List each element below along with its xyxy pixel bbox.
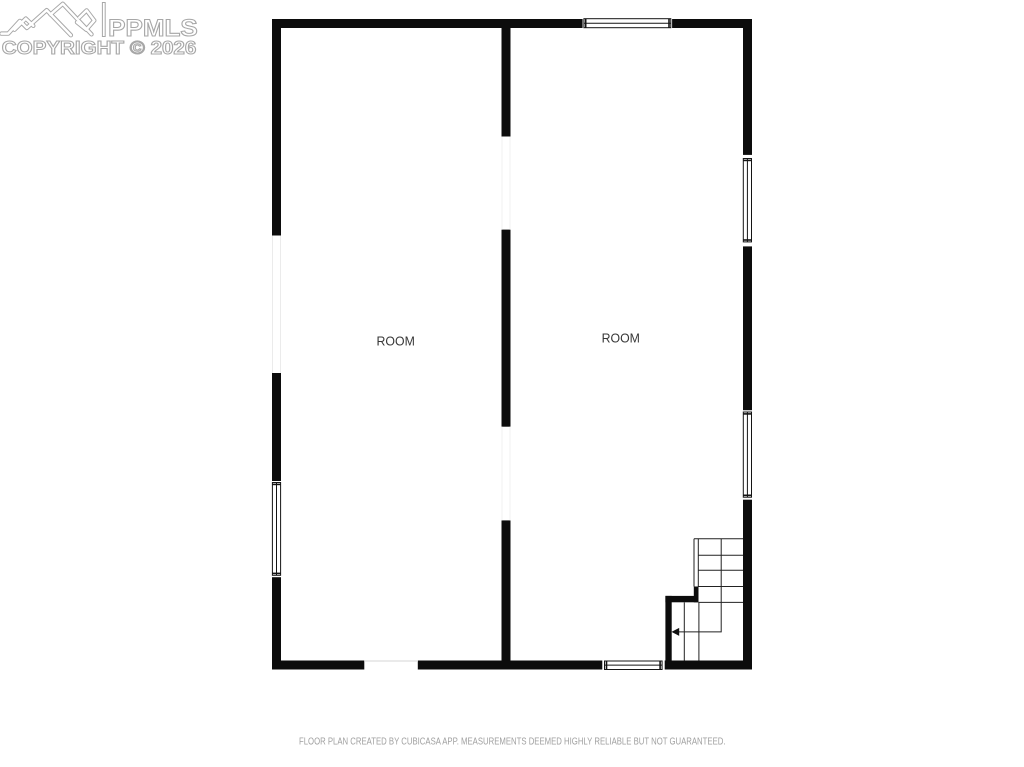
svg-text:COPYRIGHT © 2026: COPYRIGHT © 2026 bbox=[2, 37, 197, 58]
svg-text:ROOM: ROOM bbox=[377, 334, 415, 349]
svg-text:FLOOR PLAN CREATED BY CUBICASA: FLOOR PLAN CREATED BY CUBICASA APP. MEAS… bbox=[299, 737, 726, 748]
svg-text:ROOM: ROOM bbox=[602, 331, 640, 346]
